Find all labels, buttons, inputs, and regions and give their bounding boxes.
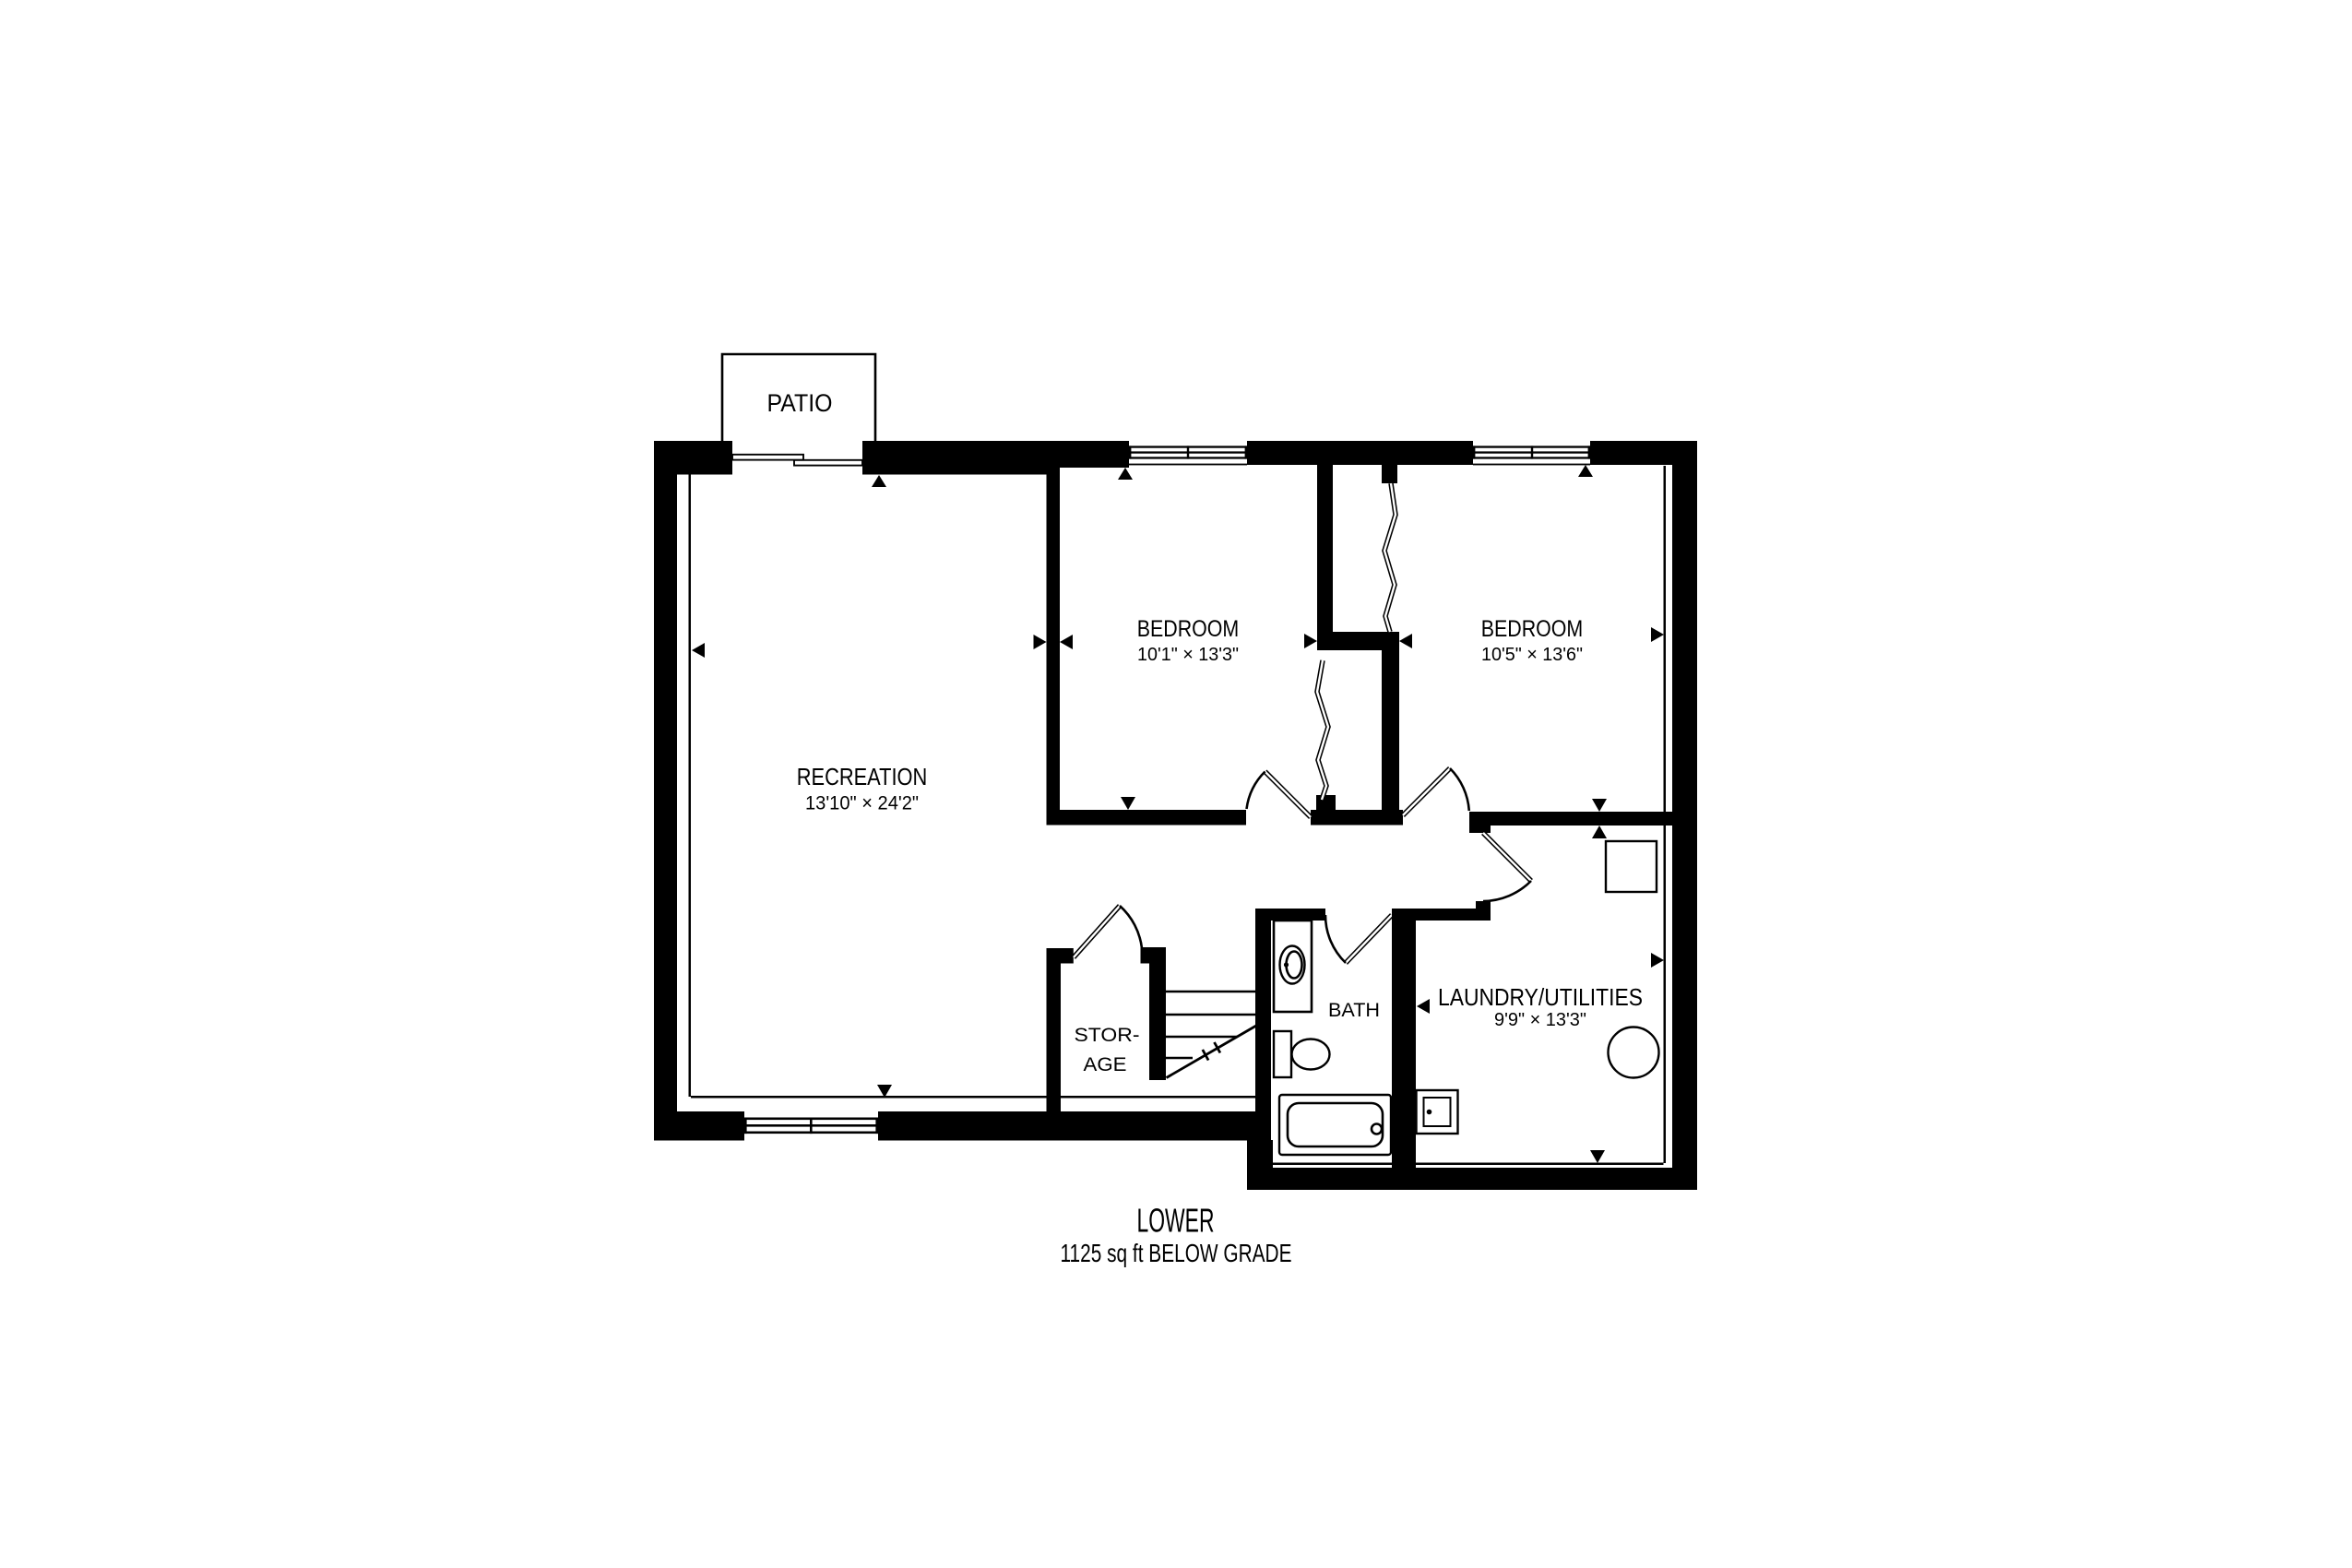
svg-text:RECREATION: RECREATION [797, 763, 928, 790]
svg-text:9'9" × 13'3": 9'9" × 13'3" [1494, 1009, 1586, 1030]
svg-text:BATH: BATH [1328, 1000, 1380, 1021]
svg-text:BEDROOM: BEDROOM [1137, 616, 1240, 642]
svg-text:BEDROOM: BEDROOM [1481, 616, 1584, 642]
svg-text:10'5" × 13'6": 10'5" × 13'6" [1481, 644, 1583, 665]
svg-text:10'1" × 13'3": 10'1" × 13'3" [1137, 644, 1239, 665]
svg-text:AGE: AGE [1084, 1054, 1127, 1075]
svg-text:STOR-: STOR- [1075, 1025, 1140, 1046]
svg-text:LOWER: LOWER [1137, 1202, 1215, 1240]
svg-text:13'10" × 24'2": 13'10" × 24'2" [805, 793, 919, 814]
svg-text:LAUNDRY/UTILITIES: LAUNDRY/UTILITIES [1438, 983, 1643, 1011]
svg-text:PATIO: PATIO [767, 389, 833, 417]
svg-text:1125 sq ft BELOW GRADE: 1125 sq ft BELOW GRADE [1061, 1239, 1292, 1267]
